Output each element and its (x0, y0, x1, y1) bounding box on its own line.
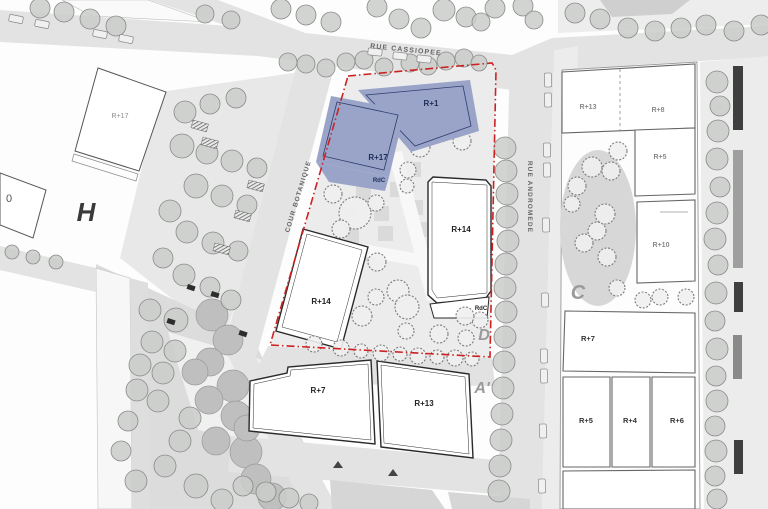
tree-icon (485, 0, 505, 18)
tree-icon (706, 202, 728, 224)
building-r13-south[interactable] (377, 361, 473, 458)
building-c-r13-r8[interactable] (562, 64, 695, 133)
tree-icon (147, 390, 169, 412)
tree-icon (164, 340, 186, 362)
tree-icon (590, 9, 610, 29)
tree-icon (111, 441, 131, 461)
tree-icon (80, 9, 100, 29)
tree-icon (125, 470, 147, 492)
car-icon (541, 293, 548, 307)
tree-icon (635, 292, 651, 308)
tree-icon (582, 157, 602, 177)
tree-mass-icon (202, 427, 230, 455)
tree-icon (706, 338, 728, 360)
tree-icon (602, 162, 620, 180)
planting-square (378, 226, 393, 241)
tree-icon (493, 351, 515, 373)
tree-icon (30, 0, 50, 18)
tree-icon (321, 12, 341, 32)
tree-icon (488, 480, 510, 502)
tree-icon (495, 253, 517, 275)
tree-icon (707, 489, 727, 509)
tree-icon (211, 489, 233, 509)
tree-icon (226, 88, 246, 108)
tree-icon (279, 488, 299, 508)
tree-icon (5, 245, 19, 259)
tree-icon (176, 221, 198, 243)
tree-icon (228, 241, 248, 261)
tree-icon (200, 94, 220, 114)
tree-icon (495, 301, 517, 323)
tree-icon (221, 150, 243, 172)
zone-label-c: C (571, 282, 586, 304)
tree-icon (708, 255, 728, 275)
tree-icon (525, 11, 543, 29)
tree-icon (184, 174, 208, 198)
tree-icon (671, 18, 691, 38)
label-rdc-east: RdC (475, 306, 488, 312)
building-c-lower[interactable] (563, 470, 695, 509)
tree-icon (494, 137, 516, 159)
tree-icon (26, 250, 40, 264)
tree-icon (704, 228, 726, 250)
tree-icon (411, 18, 431, 38)
tree-icon (595, 204, 615, 224)
tree-icon (496, 206, 518, 228)
label-r17-west: R+17 (112, 113, 129, 120)
label-c-r6: R+6 (670, 416, 684, 425)
tree-icon (430, 325, 448, 343)
tree-icon (706, 148, 728, 170)
label-c-r4: R+4 (623, 416, 638, 425)
tree-icon (724, 21, 744, 41)
tree-icon (154, 455, 176, 477)
tree-icon (710, 177, 730, 197)
tree-icon (393, 347, 407, 361)
car-icon (543, 163, 550, 177)
tree-icon (706, 390, 728, 412)
tree-icon (433, 0, 455, 21)
tree-icon (368, 253, 386, 271)
tree-icon (141, 331, 163, 353)
tree-icon (221, 290, 241, 310)
tree-icon (352, 306, 372, 326)
label-r17-blue: R+17 (368, 153, 388, 162)
car-icon (543, 143, 550, 157)
tree-icon (465, 352, 479, 366)
label-c-r5-top: R+5 (653, 154, 666, 161)
street-label-andromede: RUE ANDROMEDE (526, 161, 533, 233)
tree-icon (129, 354, 151, 376)
tree-mass-icon (182, 359, 208, 385)
tree-icon (696, 15, 716, 35)
car-icon (542, 218, 549, 232)
zone-label-a-prime: A' (473, 380, 491, 397)
label-r7-south: R+7 (311, 386, 326, 395)
tree-mass-icon (195, 386, 223, 414)
tree-icon (491, 403, 513, 425)
tree-icon (317, 59, 335, 77)
zone-label-d: D (478, 327, 490, 344)
site-plan-canvas: RUE CASSIOPEE RUE ANDROMEDE COUR BOTANIQ… (0, 0, 768, 509)
tree-icon (496, 183, 518, 205)
tree-icon (705, 311, 725, 331)
label-0-west: 0 (6, 193, 12, 205)
tree-icon (296, 5, 316, 25)
tree-icon (495, 160, 517, 182)
tree-icon (196, 5, 214, 23)
tree-icon (368, 289, 384, 305)
tree-icon (300, 494, 318, 509)
tree-icon (256, 482, 276, 502)
tree-icon (174, 101, 196, 123)
label-r1-blue: R+1 (424, 99, 439, 108)
hedge-strip (734, 282, 743, 312)
tree-icon (306, 336, 322, 352)
tree-icon (489, 455, 511, 477)
car-icon (544, 73, 551, 87)
label-r14-west: R+14 (311, 297, 331, 306)
tree-icon (373, 345, 389, 361)
label-r13-south: R+13 (414, 399, 434, 408)
tree-icon (389, 9, 409, 29)
tree-icon (678, 289, 694, 305)
tree-icon (568, 177, 586, 195)
tree-icon (170, 134, 194, 158)
car-icon (544, 93, 551, 107)
tree-icon (368, 195, 384, 211)
tree-icon (497, 230, 519, 252)
tree-icon (169, 430, 191, 452)
tree-icon (705, 440, 727, 462)
tree-icon (271, 0, 291, 19)
tree-icon (367, 0, 387, 17)
tree-icon (398, 323, 414, 339)
car-icon (538, 479, 545, 493)
building-r14-east[interactable] (428, 177, 491, 303)
tree-icon (458, 330, 474, 346)
tree-icon (471, 55, 487, 71)
tree-icon (705, 466, 725, 486)
tree-icon (565, 3, 585, 23)
tree-icon (410, 348, 426, 364)
tree-icon (297, 55, 315, 73)
tree-icon (447, 350, 463, 366)
tree-icon (588, 222, 606, 240)
tree-icon (173, 264, 195, 286)
building-c-r5[interactable] (635, 128, 695, 196)
tree-icon (710, 96, 730, 116)
label-r14-east: R+14 (451, 225, 471, 234)
tree-icon (337, 53, 355, 71)
tree-icon (211, 185, 233, 207)
tree-icon (400, 179, 414, 193)
tree-icon (54, 2, 74, 22)
tree-icon (609, 280, 625, 296)
tree-icon (139, 299, 161, 321)
hedge-strip (733, 150, 743, 268)
tree-icon (490, 429, 512, 451)
tree-icon (598, 248, 616, 266)
tree-icon (184, 474, 208, 498)
tree-icon (494, 326, 516, 348)
label-c-r5-bottom: R+5 (579, 416, 593, 425)
tree-icon (324, 185, 342, 203)
tree-icon (751, 15, 768, 35)
car-icon (539, 424, 546, 438)
tree-icon (247, 158, 267, 178)
tree-icon (609, 142, 627, 160)
car-icon (540, 349, 547, 363)
tree-icon (118, 411, 138, 431)
tree-icon (106, 16, 126, 36)
tree-icon (705, 282, 727, 304)
tree-icon (456, 307, 474, 325)
tree-icon (222, 11, 240, 29)
tree-icon (492, 377, 514, 399)
tree-icon (645, 21, 665, 41)
hedge-strip (733, 66, 743, 130)
hedge-strip (733, 335, 742, 379)
label-c-r8: R+8 (651, 107, 664, 114)
tree-icon (706, 71, 728, 93)
label-rdc-blue: RdC (373, 178, 386, 184)
zone-label-h: H (77, 197, 97, 227)
label-c-r10: R+10 (653, 242, 670, 249)
tree-icon (494, 277, 516, 299)
tree-icon (152, 362, 174, 384)
tree-icon (706, 366, 726, 386)
tree-icon (652, 289, 668, 305)
tree-icon (707, 120, 729, 142)
label-c-r7: R+7 (581, 334, 595, 343)
tree-icon (332, 220, 350, 238)
tree-icon (395, 295, 419, 319)
tree-icon (279, 53, 297, 71)
tree-icon (400, 162, 416, 178)
tree-icon (153, 248, 173, 268)
tree-icon (564, 196, 580, 212)
tree-icon (472, 13, 490, 31)
label-c-r13: R+13 (580, 104, 597, 111)
tree-icon (705, 416, 725, 436)
tree-icon (455, 49, 473, 67)
hedge-strip (734, 440, 743, 474)
tree-icon (233, 476, 253, 496)
site-plan: RUE CASSIOPEE RUE ANDROMEDE COUR BOTANIQ… (0, 0, 768, 509)
tree-icon (179, 407, 201, 429)
tree-icon (159, 200, 181, 222)
tree-icon (49, 255, 63, 269)
car-icon (540, 369, 547, 383)
tree-icon (126, 379, 148, 401)
tree-icon (618, 18, 638, 38)
tree-icon (430, 350, 444, 364)
